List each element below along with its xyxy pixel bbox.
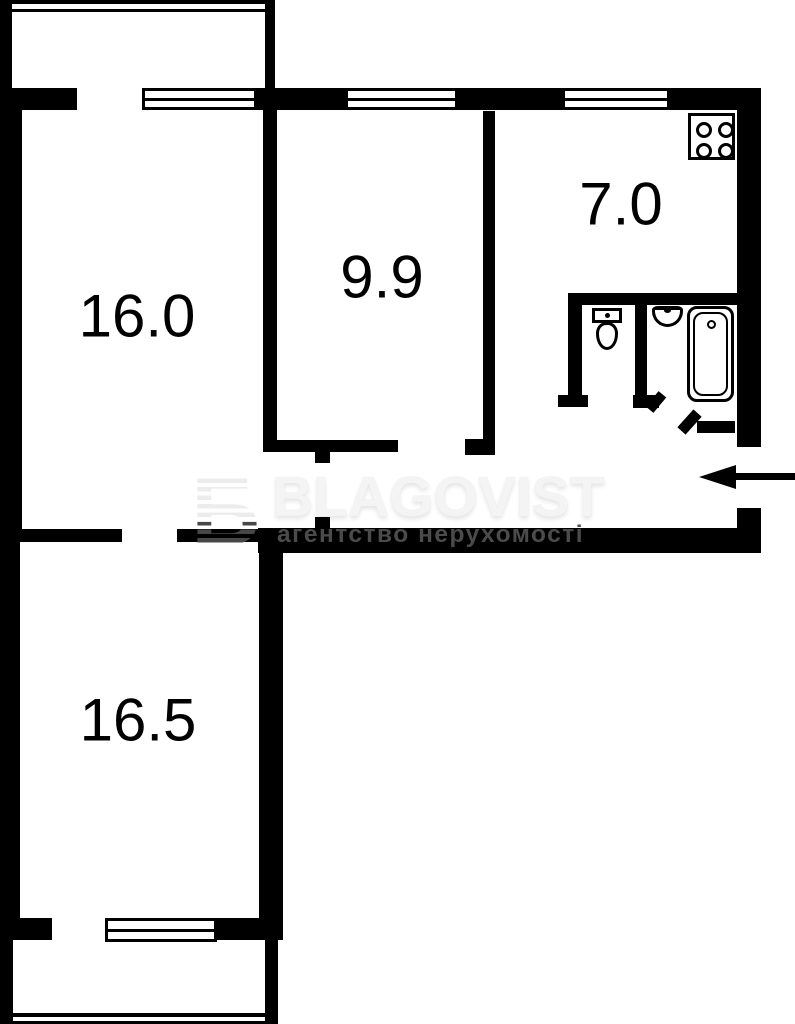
wall-room9-kitchen xyxy=(483,111,495,455)
toilet-flush-button xyxy=(605,313,610,318)
stove-burner xyxy=(696,122,712,138)
floor-plan: 16.0 9.9 7.0 16.5 Б BLAGOVIST агентство … xyxy=(0,0,795,1024)
bathtub-icon xyxy=(687,306,734,402)
window xyxy=(345,88,458,110)
stove-burner xyxy=(718,143,734,159)
entrance-arrow-shaft xyxy=(736,473,795,480)
exterior-left-wall xyxy=(0,88,22,542)
agency-logo-icon: Б xyxy=(191,470,260,554)
entrance-arrow-icon xyxy=(699,465,736,489)
balcony-railing xyxy=(12,9,265,12)
agency-tagline-watermark: агентство нерухомості xyxy=(277,522,584,548)
window xyxy=(142,88,257,110)
bathroom-top-wall xyxy=(568,293,737,305)
balcony-door-opening xyxy=(77,88,142,110)
room-area-label-16-5: 16.5 xyxy=(80,686,197,755)
wc-bath-wall xyxy=(635,305,647,397)
door-jamb xyxy=(465,439,483,455)
wc-left-wall xyxy=(568,305,582,397)
room165-bottom-wall xyxy=(0,918,52,940)
room165-right-wall xyxy=(259,529,283,940)
room165-bottom-wall xyxy=(217,918,283,940)
wall-room16-room165 xyxy=(22,529,122,542)
room-area-label-16-0: 16.0 xyxy=(79,282,196,351)
agency-brand-watermark: BLAGOVIST xyxy=(272,468,605,526)
window-mullion xyxy=(145,98,254,101)
balcony-left-wall xyxy=(0,0,12,90)
wall-room9-bottom xyxy=(263,440,398,452)
window xyxy=(562,88,670,110)
lower-balcony-railing xyxy=(13,1013,265,1017)
window-mullion xyxy=(565,98,667,101)
door-jamb xyxy=(558,395,588,407)
exterior-left-wall xyxy=(0,542,20,940)
bathtub-drain xyxy=(707,320,716,329)
sink-faucet xyxy=(664,308,671,313)
room-area-label-9-9: 9.9 xyxy=(340,243,423,312)
lower-balcony-left-wall xyxy=(0,940,13,1024)
toilet-bowl xyxy=(596,322,618,350)
window xyxy=(105,918,217,942)
bathroom-door-leaf xyxy=(697,421,735,433)
window-mullion xyxy=(348,98,455,101)
stove-burner xyxy=(696,143,712,159)
stove-icon xyxy=(688,113,735,160)
stove-burner xyxy=(718,122,734,138)
balcony-top-edge-wall xyxy=(0,0,275,4)
wall-room16-room9 xyxy=(263,110,277,452)
door-jamb xyxy=(315,452,330,463)
exterior-right-wall xyxy=(737,88,761,447)
window-mullion xyxy=(108,929,214,932)
room-area-label-7-0: 7.0 xyxy=(579,170,662,239)
balcony-right-wall xyxy=(265,0,275,90)
lower-balcony-right-wall xyxy=(265,940,278,1024)
